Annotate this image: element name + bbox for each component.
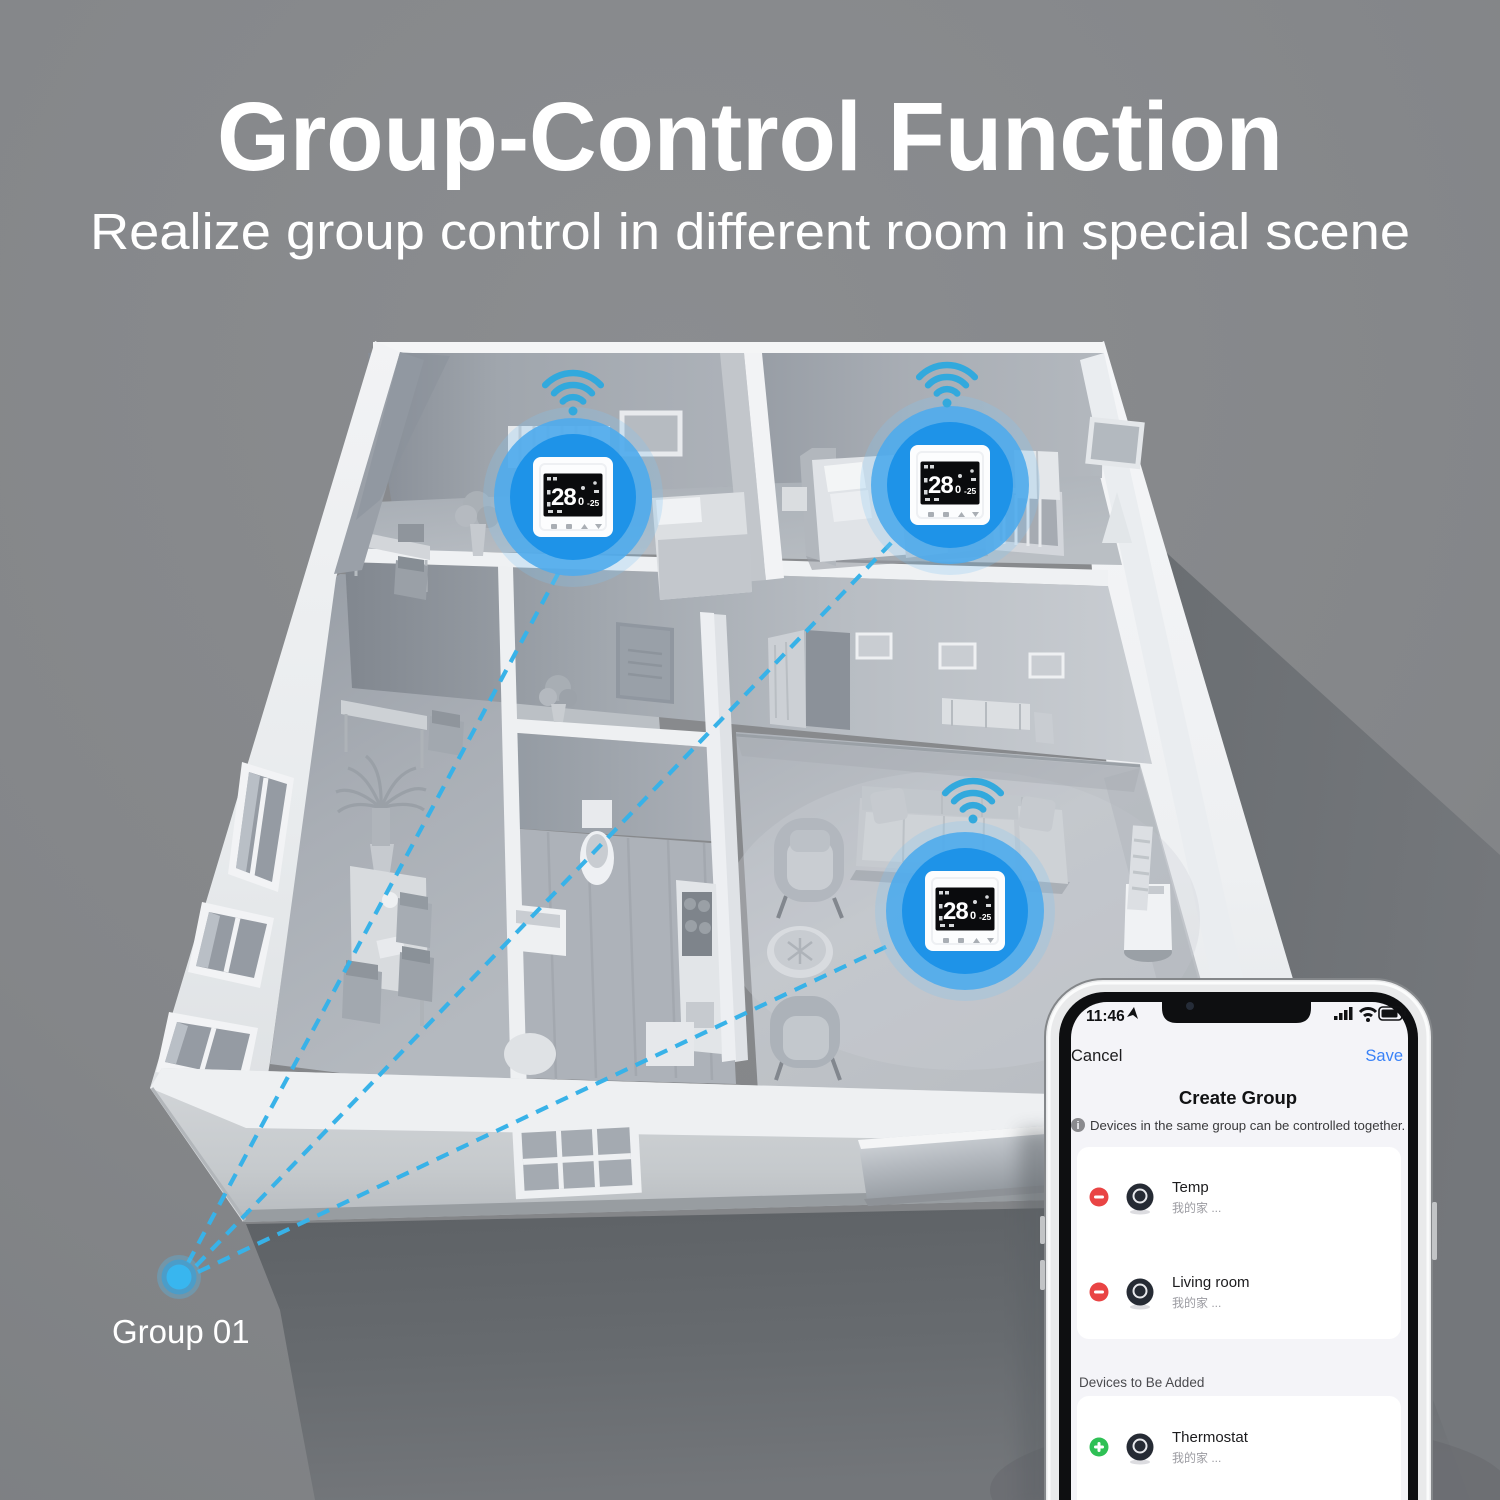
svg-text:我的家 ...: 我的家 ... xyxy=(1172,1295,1221,1310)
svg-text:Devices to Be Added: Devices to Be Added xyxy=(1079,1375,1204,1390)
svg-text:Devices in the same group can: Devices in the same group can be control… xyxy=(1090,1118,1405,1133)
svg-text:Group-Control Function: Group-Control Function xyxy=(217,82,1283,191)
svg-text:Temp: Temp xyxy=(1172,1179,1209,1196)
svg-text:Thermostat: Thermostat xyxy=(1172,1429,1249,1446)
svg-text:Group 01: Group 01 xyxy=(112,1313,250,1350)
svg-text:Living room: Living room xyxy=(1172,1274,1250,1291)
svg-text:Cancel: Cancel xyxy=(1071,1047,1122,1065)
svg-text:Save: Save xyxy=(1365,1047,1403,1065)
svg-text:我的家 ...: 我的家 ... xyxy=(1172,1200,1221,1215)
svg-text:我的家 ...: 我的家 ... xyxy=(1172,1450,1221,1465)
svg-text:Create Group: Create Group xyxy=(1179,1087,1297,1108)
svg-text:i: i xyxy=(1076,1120,1079,1132)
svg-text:11:46: 11:46 xyxy=(1086,1008,1125,1025)
svg-text:Realize group control in diffe: Realize group control in different room … xyxy=(90,203,1410,260)
